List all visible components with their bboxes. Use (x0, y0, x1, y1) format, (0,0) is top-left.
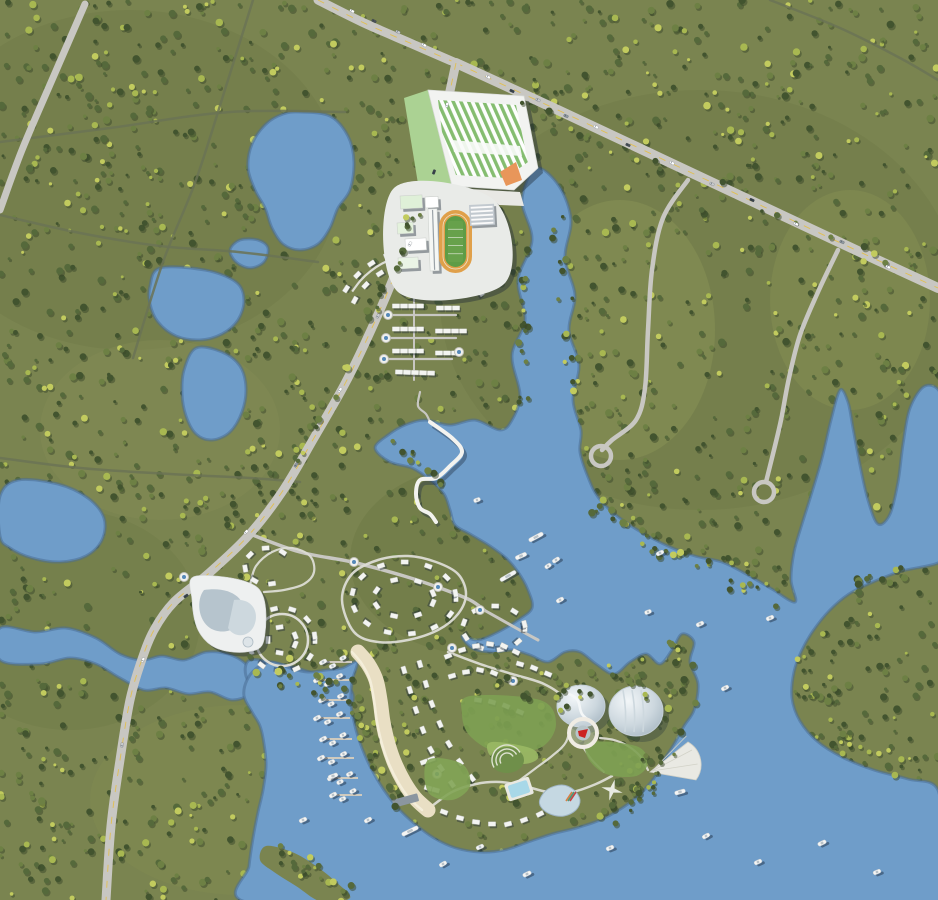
west-pond-a (149, 267, 244, 340)
bleachers (469, 204, 497, 229)
master-plan-map (0, 0, 938, 900)
site-plan-viewport (0, 0, 938, 900)
small-dome (243, 637, 253, 647)
shell-dome-pavilion (609, 686, 663, 736)
west-pond-b (182, 347, 246, 440)
campus-building (400, 195, 425, 212)
running-track (442, 213, 469, 270)
